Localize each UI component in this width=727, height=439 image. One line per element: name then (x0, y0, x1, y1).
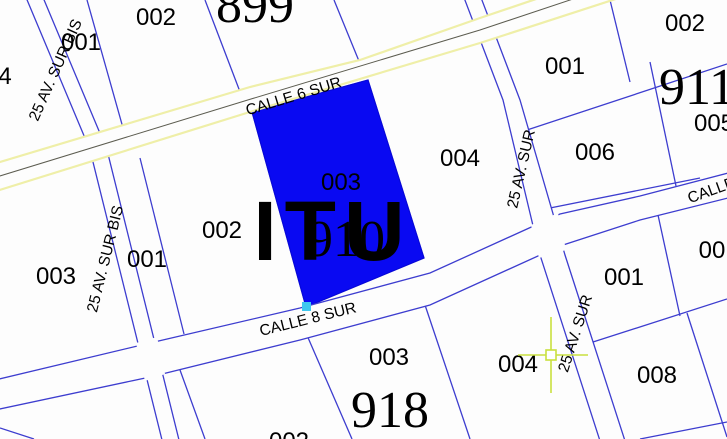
parcel-left-003: 003 (36, 263, 76, 290)
block-899: 899 (216, 0, 294, 34)
parcel-tr-005: 005 (694, 110, 727, 137)
parcel-right-001: 001 (604, 264, 644, 291)
block-left-partial: 4 (0, 63, 12, 90)
parcel-910-002: 002 (202, 217, 242, 244)
map-viewport[interactable]: ITU 899 910 911 918 4 002 001 002 001 00… (0, 0, 727, 439)
parcel-right-00x: 00 (699, 237, 726, 264)
block-910: 910 (307, 211, 385, 268)
parcel-tr-001: 001 (545, 53, 585, 80)
parcel-tl-002: 002 (136, 4, 176, 31)
selection-vertex-handle[interactable] (302, 302, 311, 311)
parcel-910-004: 004 (440, 145, 480, 172)
parcel-918-002: 002 (269, 428, 309, 439)
cadastral-map-canvas[interactable]: ITU 899 910 911 918 4 002 001 002 001 00… (0, 0, 727, 439)
block-911: 911 (659, 59, 727, 116)
parcel-910-003-selected[interactable]: 003 (321, 169, 361, 196)
parcel-910-001: 001 (127, 246, 167, 273)
parcel-right-008: 008 (637, 362, 677, 389)
parcel-918-003: 003 (369, 344, 409, 371)
parcel-tr-002: 002 (665, 10, 705, 37)
parcel-tr-006: 006 (575, 139, 615, 166)
block-918: 918 (351, 382, 429, 439)
